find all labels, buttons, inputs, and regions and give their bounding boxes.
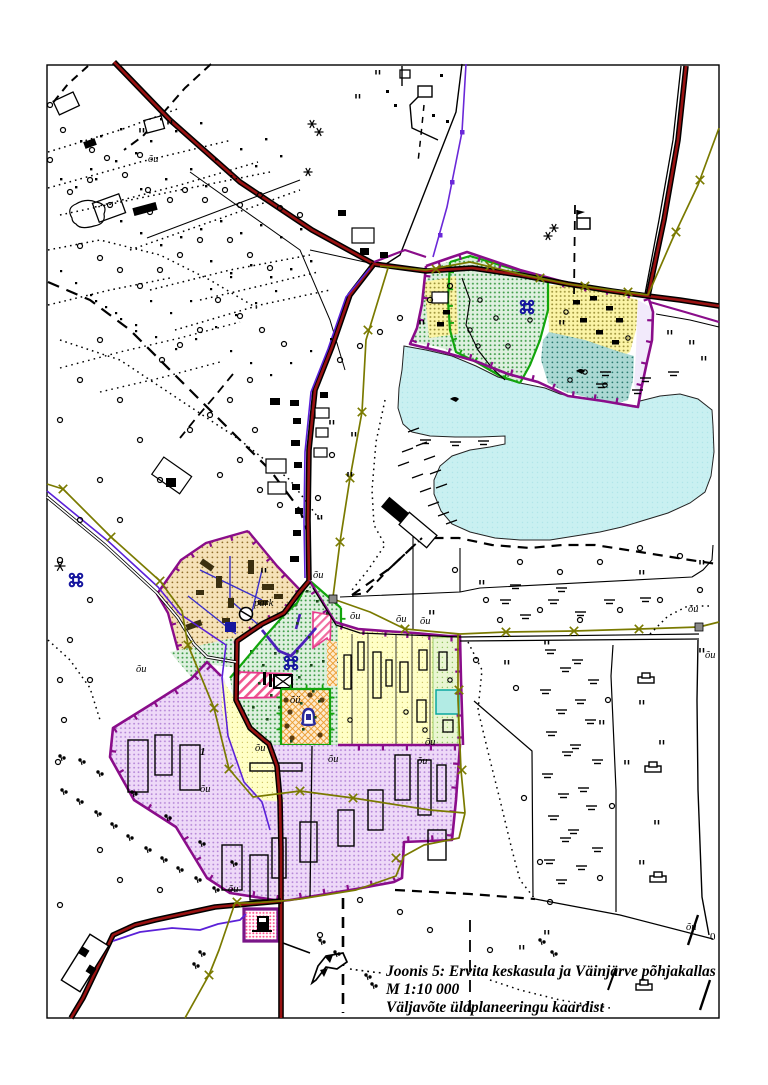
svg-text:M 1:10 000: M 1:10 000 xyxy=(385,981,459,998)
svg-text:õu: õu xyxy=(136,664,147,675)
svg-text:park: park xyxy=(253,598,274,609)
svg-text:õu: õu xyxy=(328,754,339,765)
svg-text:õu: õu xyxy=(425,737,436,748)
svg-text:Väljavõte üldplaneeringu kaard: Väljavõte üldplaneeringu kaardist xyxy=(386,999,605,1016)
svg-text:õu: õu xyxy=(686,922,697,933)
svg-text:õu: õu xyxy=(255,743,266,754)
svg-text:0: 0 xyxy=(710,931,716,943)
svg-text:õu: õu xyxy=(200,784,211,795)
svg-text:õu: õu xyxy=(313,570,324,581)
svg-text:õu: õu xyxy=(420,616,431,627)
svg-text:õu: õu xyxy=(688,604,699,615)
svg-text:õu: õu xyxy=(148,154,159,165)
svg-text:1: 1 xyxy=(200,746,206,758)
svg-text:Joonis 5: Ervita keskasula ja: Joonis 5: Ervita keskasula ja Väinjärve … xyxy=(385,963,716,980)
svg-text:õu: õu xyxy=(705,650,716,661)
svg-text:õu: õu xyxy=(396,614,407,625)
svg-text:õu: õu xyxy=(350,611,361,622)
svg-text:õu: õu xyxy=(417,756,428,767)
svg-text:õü: õü xyxy=(290,695,301,706)
svg-text:õu: õu xyxy=(228,884,239,895)
